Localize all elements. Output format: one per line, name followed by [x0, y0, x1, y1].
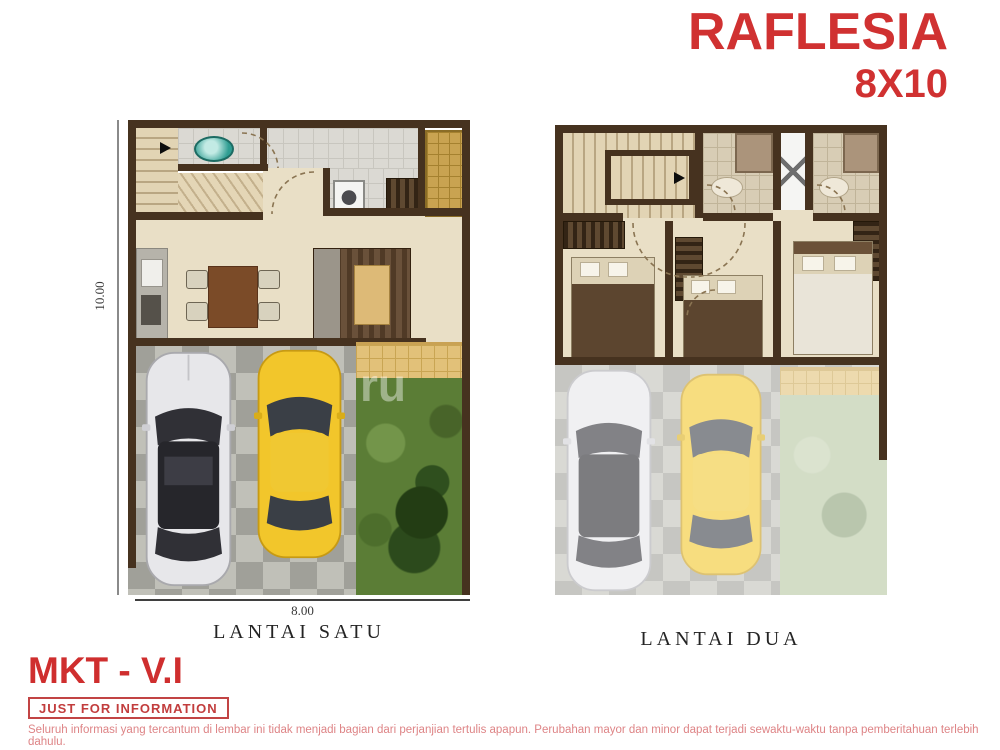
void-shaft [781, 133, 805, 210]
bed-master-bedroom [793, 241, 873, 355]
wall-outer-left [128, 120, 136, 568]
wall-segment [773, 221, 781, 365]
master-bed-frame [313, 248, 411, 340]
sink-icon [141, 259, 163, 287]
dining-chair [186, 302, 208, 321]
dining-chair [258, 270, 280, 289]
wall-outer-right [879, 125, 887, 460]
house-type-name: RAFLESIA [688, 6, 948, 58]
stairs-well [605, 150, 695, 205]
width-dimension-label: 8.00 [135, 603, 470, 619]
stove-icon [141, 295, 161, 325]
second-floor-label: LANTAI DUA [555, 628, 887, 651]
room-bathroom-b [813, 133, 879, 215]
bed-middle-bedroom [683, 275, 763, 359]
sofa-bench [314, 249, 340, 339]
stairs-run [136, 128, 178, 215]
floorplan-first-floor: ru [128, 120, 470, 595]
toilet-icon [194, 136, 234, 162]
ground-floor-ghost-view [555, 365, 887, 595]
info-stamp: JUST FOR INFORMATION [28, 697, 229, 719]
wall-outer-top [128, 120, 470, 128]
house-type-size: 8X10 [688, 64, 948, 104]
wall-segment [260, 128, 267, 171]
watermark-text: ru [360, 358, 406, 412]
wall-segment [323, 208, 462, 216]
disclaimer-text: Seluruh informasi yang tercantum di lemb… [28, 724, 990, 748]
flyer-title: RAFLESIA 8X10 [688, 6, 948, 104]
first-floor-label: LANTAI SATU [128, 621, 470, 644]
shower-tray [843, 133, 879, 173]
toilet-icon [819, 177, 849, 198]
shower-tray [735, 133, 773, 173]
kitchen-counter [136, 248, 168, 342]
wall-segment [695, 133, 703, 218]
wall-segment [178, 164, 268, 171]
wall-segment [805, 133, 813, 210]
car-silver-topview-faded-icon [563, 368, 655, 593]
terrace-tiles-faded [780, 367, 887, 398]
flyer-canvas: RAFLESIA 8X10 10.00 8.00 LANTAI SATU LAN… [0, 0, 1000, 750]
wardrobe [563, 221, 625, 249]
vertical-dimension-line [117, 120, 119, 595]
dining-chair [186, 270, 208, 289]
car-yellow-topview-icon [254, 348, 345, 560]
height-dimension-label: 10.00 [92, 256, 108, 336]
dining-table [208, 266, 258, 328]
wall-outer-top [555, 125, 887, 133]
stairs-landing [178, 173, 263, 215]
wall-outer-left [555, 125, 563, 365]
room-bathroom-a [703, 133, 773, 215]
bed-left-bedroom [571, 257, 655, 359]
wall-segment [136, 212, 263, 220]
wall-segment [665, 221, 673, 365]
floorplan-second-floor [555, 125, 887, 595]
car-yellow-topview-faded-icon [677, 372, 765, 577]
garden-faded [780, 395, 887, 595]
dining-chair [258, 302, 280, 321]
wall-segment [773, 133, 781, 210]
horizontal-dimension-line [135, 599, 470, 601]
toilet-icon [711, 177, 743, 198]
marketing-code: MKT - V.I [28, 650, 183, 692]
room-living-dining [136, 215, 462, 346]
wall-segment [418, 128, 425, 215]
carport-paving-faded [555, 365, 887, 595]
hall-neck [263, 168, 323, 215]
stairs-direction-arrow-icon [674, 172, 685, 184]
kitchen-cabinet-gold [425, 130, 466, 217]
wall-outer-right [462, 120, 470, 595]
wall-segment [563, 213, 623, 221]
bed-mattress [354, 265, 390, 325]
wall-segment [813, 213, 879, 221]
stairs-direction-arrow-icon [160, 142, 171, 154]
wall-segment [703, 213, 773, 221]
wall-outer-bottom [555, 357, 887, 365]
car-silver-topview-icon [142, 350, 235, 588]
